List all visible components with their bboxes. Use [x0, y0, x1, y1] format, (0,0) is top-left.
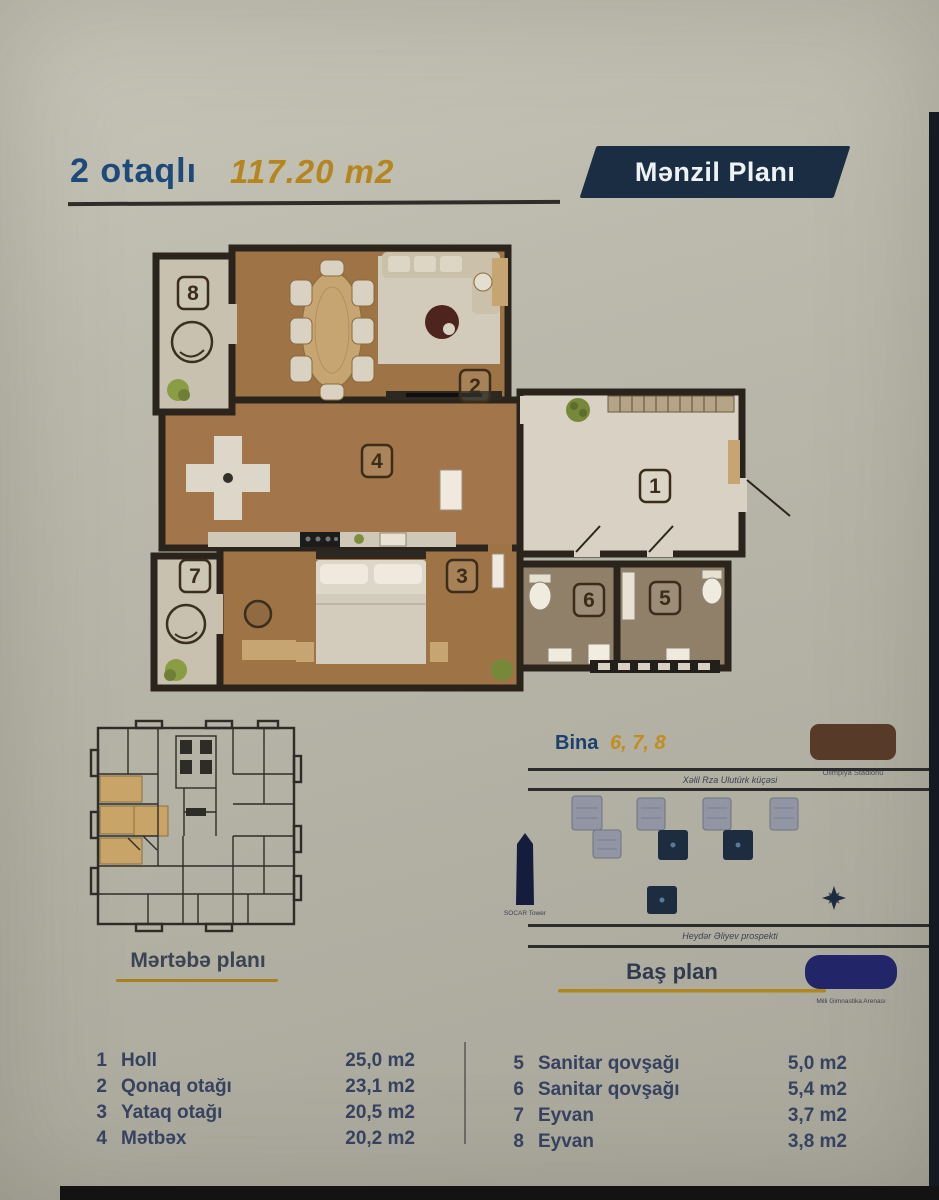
legend-name: Yataq otağı — [121, 1102, 222, 1124]
legend-num: 2 — [85, 1076, 107, 1098]
legend-area: 5,0 m2 — [788, 1053, 847, 1075]
legend-name: Sanitar qovşağı — [538, 1079, 680, 1101]
martaba-title-underline — [116, 979, 278, 982]
photo-edge-bottom — [60, 1186, 939, 1200]
legend-num: 6 — [502, 1079, 524, 1101]
martaba-title: Mərtəbə planı — [110, 949, 286, 973]
arena-caption: Milli Gimnastika Arenası — [816, 998, 886, 1005]
bas-plan-title: Baş plan — [626, 959, 718, 984]
plan-badge-label: Mənzil Planı — [635, 157, 796, 188]
svg-text:7: 7 — [189, 565, 201, 588]
svg-text:3: 3 — [456, 565, 468, 588]
legend-area: 3,7 m2 — [788, 1105, 847, 1127]
room-badge-3: 3 — [447, 560, 477, 592]
tower-caption: SOCAR Tower — [504, 910, 547, 917]
photo-edge-right — [929, 112, 939, 1200]
legend-row: 1 Holl 25,0 m2 — [85, 1050, 415, 1075]
legend-name: Sanitar qovşağı — [538, 1053, 680, 1075]
legend-left-column: 1 Holl 25,0 m2 2 Qonaq otağı 23,1 m2 3 Y… — [85, 1050, 415, 1153]
page-title-area: 117.20 m2 — [230, 153, 394, 191]
legend-row: 5 Sanitar qovşağı 5,0 m2 — [502, 1053, 847, 1078]
compass-icon — [822, 886, 846, 910]
legend-num: 8 — [502, 1131, 524, 1153]
room-badge-4: 4 — [362, 445, 392, 477]
legend-row: 3 Yataq otağı 20,5 m2 — [85, 1102, 415, 1127]
room-badge-1: 1 — [640, 470, 670, 502]
svg-text:6: 6 — [583, 589, 595, 612]
bas-plan-map: Bina 6, 7, 8 Olimpiya Stadionu Xəlil Rza… — [498, 712, 938, 1012]
room-badge-8: 8 — [178, 277, 208, 309]
legend-row: 4 Mətbəx 20,2 m2 — [85, 1128, 415, 1153]
bina-numbers: 6, 7, 8 — [610, 732, 666, 754]
legend-area: 20,5 m2 — [345, 1102, 415, 1124]
legend-row: 2 Qonaq otağı 23,1 m2 — [85, 1076, 415, 1101]
legend-num: 3 — [85, 1102, 107, 1124]
legend-row: 8 Eyvan 3,8 m2 — [502, 1131, 847, 1156]
legend-num: 1 — [85, 1050, 107, 1072]
room-badge-6: 6 — [574, 584, 604, 616]
svg-text:8: 8 — [187, 282, 199, 305]
room-badge-7: 7 — [180, 560, 210, 592]
highlighted-buildings — [647, 830, 753, 914]
title-underline — [68, 200, 560, 206]
svg-text:4: 4 — [371, 450, 383, 473]
legend-area: 23,1 m2 — [345, 1076, 415, 1098]
legend-row: 6 Sanitar qovşağı 5,4 m2 — [502, 1079, 847, 1104]
legend-name: Mətbəx — [121, 1128, 186, 1150]
room-badge-5: 5 — [650, 582, 680, 614]
street-bottom-label: Heydər Əliyev prospekti — [682, 931, 779, 941]
svg-text:1: 1 — [649, 475, 661, 498]
martaba-plan-sketch — [88, 716, 303, 948]
plan-badge: Mənzil Planı — [580, 146, 851, 198]
bas-plan-underline — [558, 989, 826, 993]
legend-area: 25,0 m2 — [345, 1050, 415, 1072]
legend-name: Eyvan — [538, 1105, 594, 1127]
page-title-rooms: 2 otaqlı — [70, 152, 197, 191]
legend-area: 3,8 m2 — [788, 1131, 847, 1153]
bina-label: Bina — [555, 732, 599, 754]
tower-shape — [516, 833, 534, 905]
legend-name: Qonaq otağı — [121, 1076, 232, 1098]
legend-divider — [464, 1042, 466, 1144]
brochure-page: 2 otaqlı 117.20 m2 Mənzil Planı — [0, 0, 939, 1200]
room-badge-2: 2 — [460, 370, 490, 402]
svg-text:2: 2 — [469, 375, 481, 398]
legend-num: 7 — [502, 1105, 524, 1127]
legend-name: Holl — [121, 1050, 157, 1072]
legend-name: Eyvan — [538, 1131, 594, 1153]
street-bottom: Heydər Əliyev prospekti — [528, 924, 933, 948]
legend-num: 5 — [502, 1053, 524, 1075]
legend-num: 4 — [85, 1128, 107, 1150]
stadium-shape — [810, 724, 896, 760]
legend-area: 5,4 m2 — [788, 1079, 847, 1101]
apartment-floor-plan: 1 2 3 4 5 6 7 8 — [150, 242, 800, 697]
street-top-label: Xəlil Rza Ulutürk küçəsi — [682, 775, 779, 785]
legend-row: 7 Eyvan 3,7 m2 — [502, 1105, 847, 1130]
legend-right-column: 5 Sanitar qovşağı 5,0 m2 6 Sanitar qovşa… — [502, 1053, 847, 1156]
svg-text:5: 5 — [659, 587, 671, 610]
arena-shape — [805, 955, 897, 989]
legend-area: 20,2 m2 — [345, 1128, 415, 1150]
